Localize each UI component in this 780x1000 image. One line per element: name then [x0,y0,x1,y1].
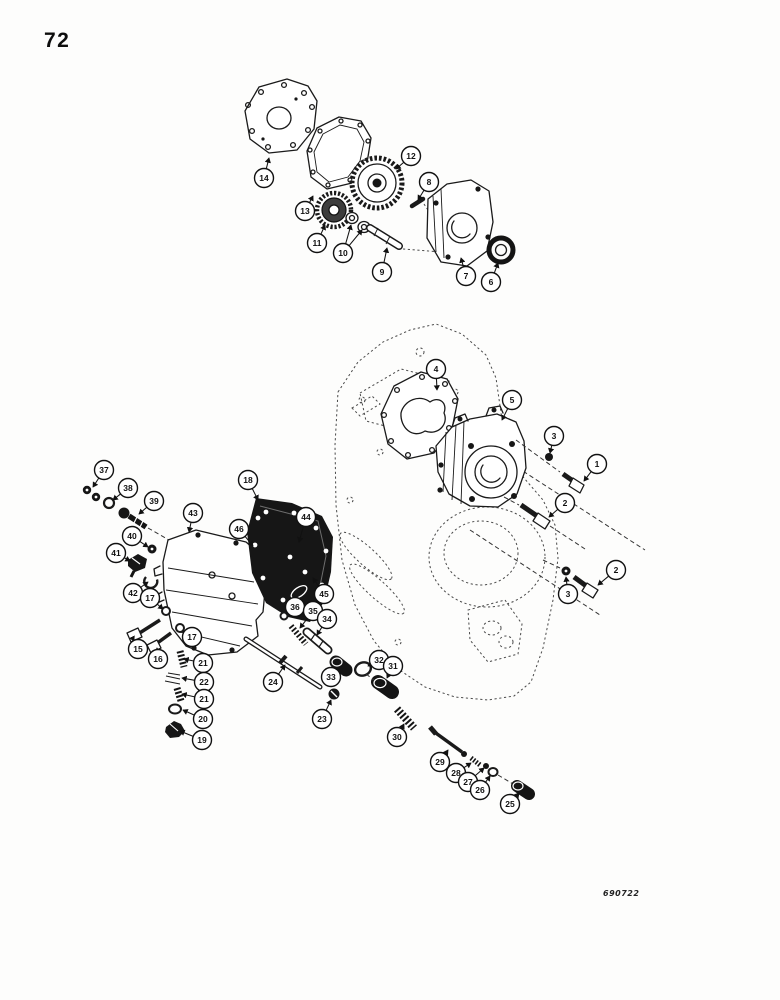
callout-23: 23 [313,700,332,729]
part-elbow-41 [128,554,147,577]
callout-17: 17 [141,589,164,610]
callout-39: 39 [139,492,164,515]
svg-text:8: 8 [427,177,432,187]
svg-text:14: 14 [259,173,269,183]
part-spring-21b [177,688,181,701]
svg-text:17: 17 [145,593,155,603]
part-nut-23 [329,689,340,700]
figure-code: 690722 [603,889,639,898]
svg-text:25: 25 [505,799,515,809]
svg-text:18: 18 [243,475,253,485]
svg-text:45: 45 [319,589,329,599]
callout-15: 15 [129,640,148,659]
callout-29: 29 [431,750,450,772]
svg-text:5: 5 [510,395,515,405]
callout-10: 10 [334,225,363,263]
part-front-plate [245,79,317,153]
callout-33: 33 [322,668,341,687]
svg-text:12: 12 [406,151,416,161]
svg-text:32: 32 [374,655,384,665]
callout-14: 14 [255,158,274,188]
callout-36: 36 [286,598,305,617]
svg-text:6: 6 [489,277,494,287]
svg-text:2: 2 [614,565,619,575]
callout-38: 38 [113,479,138,501]
part-ring-38 [104,498,114,508]
part-bolt-15 [127,620,160,642]
svg-text:35: 35 [308,606,318,616]
svg-text:36: 36 [290,602,300,612]
svg-text:41: 41 [111,548,121,558]
part-driven-gear [352,158,402,208]
callout-3: 3 [559,577,578,604]
svg-text:33: 33 [326,672,336,682]
svg-text:30: 30 [392,732,402,742]
pump-mounting-parts [381,372,598,598]
callout-41: 41 [107,544,131,563]
callout-19: 19 [180,731,212,750]
svg-text:20: 20 [198,714,208,724]
svg-text:10: 10 [338,248,348,258]
svg-text:4: 4 [434,364,439,374]
svg-text:46: 46 [234,524,244,534]
manual-page: 72 [0,0,780,1000]
part-ring-26 [489,768,514,784]
svg-text:21: 21 [198,658,208,668]
part-washer-17a [162,607,170,615]
svg-text:7: 7 [464,271,469,281]
svg-text:3: 3 [552,431,557,441]
part-spring-30 [397,709,414,728]
svg-text:2: 2 [563,498,568,508]
part-washer-17b [176,624,184,632]
callout-18: 18 [239,471,259,501]
callout-6: 6 [482,263,501,292]
part-plug-25 [513,782,529,794]
exploded-parts-diagram: 72 [0,0,780,1000]
part-pump-body [427,180,493,266]
part-ring-20 [169,705,181,714]
callout-34: 34 [317,610,337,636]
svg-text:44: 44 [301,512,311,522]
callout-40: 40 [123,527,149,548]
svg-text:43: 43 [188,508,198,518]
callout-25: 25 [501,793,520,814]
svg-text:24: 24 [268,677,278,687]
svg-text:23: 23 [317,714,327,724]
svg-text:21: 21 [199,694,209,704]
transmission-case-phantom [335,324,645,700]
part-clip-19 [165,721,185,738]
part-washer-3a [545,453,553,461]
part-nut-40 [148,545,157,554]
page-number: 72 [44,29,70,52]
part-oil-seal [489,238,513,262]
callout-30: 30 [388,724,407,747]
svg-text:3: 3 [566,589,571,599]
part-clip-37 [83,486,100,501]
callout-9: 9 [373,248,392,282]
svg-text:17: 17 [187,632,197,642]
callout-5: 5 [502,391,522,421]
svg-text:37: 37 [99,465,109,475]
svg-text:15: 15 [133,644,143,654]
svg-text:26: 26 [475,785,485,795]
part-wire-spring-22 [165,673,180,684]
svg-text:22: 22 [199,677,209,687]
callout-22: 22 [182,673,214,692]
callout-31: 31 [384,657,403,679]
svg-text:31: 31 [388,661,398,671]
part-drive-gear [317,193,351,227]
svg-text:38: 38 [123,483,133,493]
part-valve-rod-24 [246,639,320,687]
svg-text:16: 16 [153,654,163,664]
callout-13: 13 [296,196,315,221]
callout-24: 24 [264,665,286,692]
svg-text:19: 19 [197,735,207,745]
callout-21: 21 [184,654,213,673]
pump-assembly-drawing [245,79,513,266]
callout-21: 21 [182,690,214,709]
svg-text:40: 40 [127,531,137,541]
svg-text:1: 1 [595,459,600,469]
callout-20: 20 [183,710,213,729]
svg-text:11: 11 [313,238,322,248]
part-halfring-42 [144,577,157,588]
part-spring-28 [471,758,480,765]
svg-text:42: 42 [128,588,138,598]
svg-text:29: 29 [435,757,445,767]
callout-43: 43 [184,504,203,533]
callout-3: 3 [545,427,564,454]
svg-text:39: 39 [149,496,159,506]
callout-17: 17 [183,628,202,647]
svg-text:34: 34 [322,614,332,624]
part-spring-21a [180,651,184,667]
callout-2: 2 [598,561,626,586]
callout-1: 1 [584,455,607,482]
part-rod-29 [430,727,467,757]
callout-2: 2 [549,494,575,518]
callout-37: 37 [93,461,114,488]
callout-12: 12 [396,147,421,170]
control-valve-assembly [83,486,529,794]
callout-11: 11 [308,225,327,253]
svg-text:9: 9 [380,267,385,277]
svg-text:13: 13 [300,206,310,216]
